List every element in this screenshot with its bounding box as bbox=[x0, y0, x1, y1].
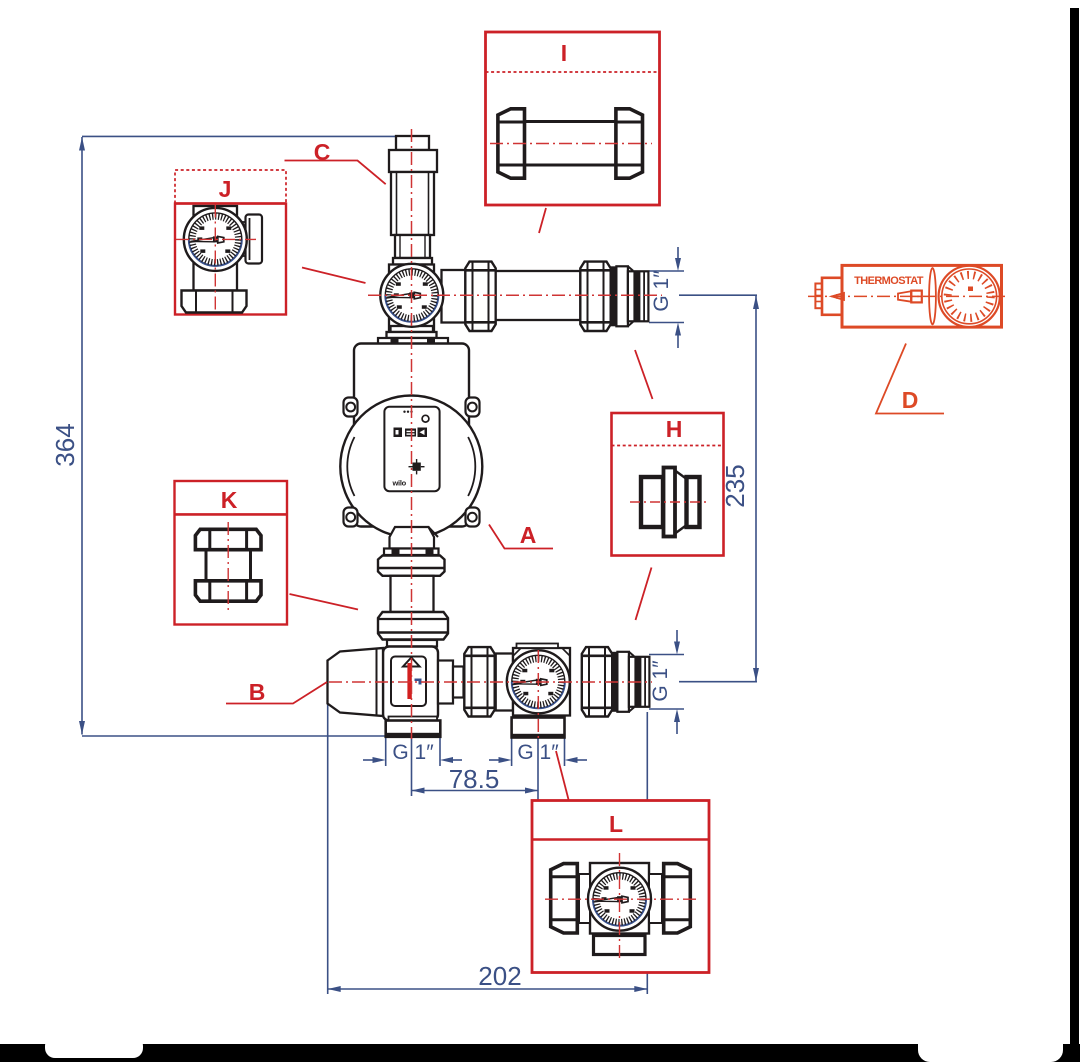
svg-text:B: B bbox=[249, 679, 266, 705]
svg-text:K: K bbox=[221, 487, 238, 513]
svg-text:364: 364 bbox=[50, 423, 80, 466]
svg-text:wilo: wilo bbox=[392, 479, 407, 488]
svg-text:A: A bbox=[520, 522, 537, 548]
svg-text:G 1″: G 1″ bbox=[649, 660, 672, 702]
svg-text:G 1″: G 1″ bbox=[650, 270, 673, 312]
svg-text:L: L bbox=[609, 811, 623, 837]
svg-text:D: D bbox=[902, 387, 919, 413]
svg-text:THERMOSTAT: THERMOSTAT bbox=[854, 275, 924, 287]
svg-text:H: H bbox=[666, 416, 683, 442]
svg-text:J: J bbox=[219, 176, 232, 202]
svg-text:I: I bbox=[561, 40, 567, 66]
svg-text:78.5: 78.5 bbox=[449, 764, 500, 794]
svg-text:202: 202 bbox=[478, 961, 521, 991]
svg-text:G 1″: G 1″ bbox=[392, 741, 434, 764]
